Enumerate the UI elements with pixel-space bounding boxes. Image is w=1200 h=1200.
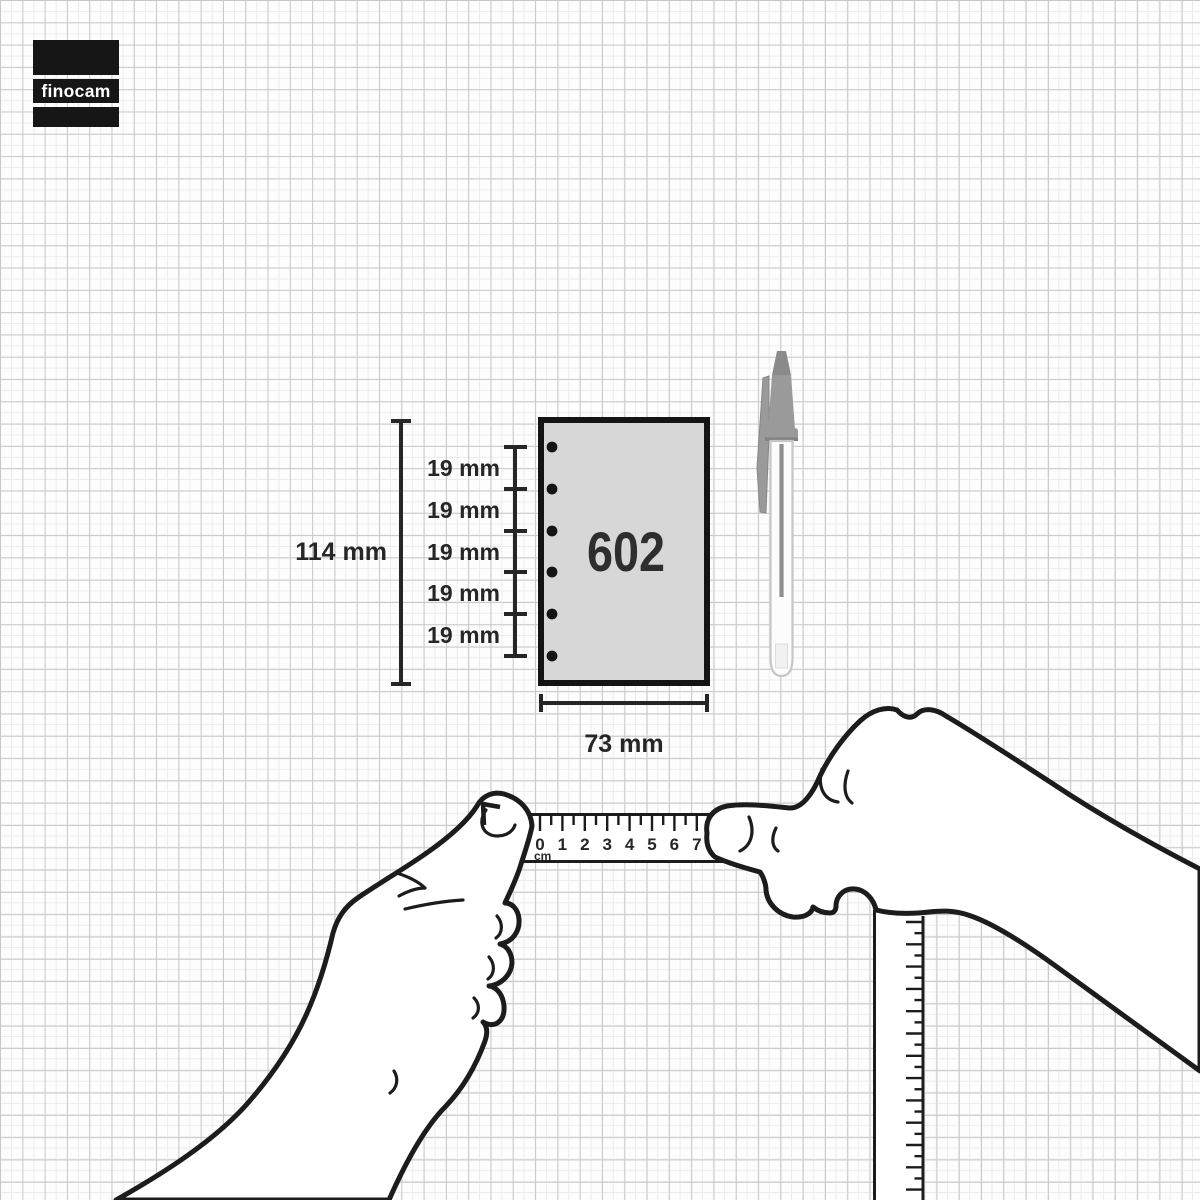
ruler-number: 7 <box>692 835 701 854</box>
sheet-hole <box>547 484 558 495</box>
refill-sheet: 602 <box>541 420 707 683</box>
ruler-number: 2 <box>580 835 589 854</box>
sheet-code-label: 602 <box>587 520 665 583</box>
brand-logo: finocam <box>33 40 119 127</box>
ruler-unit-label: cm <box>534 849 551 863</box>
left-hand-outline <box>116 793 532 1200</box>
right-hand-outline <box>707 708 1200 1071</box>
hole-spacing-label: 19 mm <box>427 455 500 481</box>
sheet-hole <box>547 609 558 620</box>
hole-spacing-dimension: 19 mm 19 mm 19 mm 19 mm 19 mm <box>427 447 527 656</box>
vertical-ruler <box>873 908 925 1200</box>
pen <box>757 351 798 676</box>
hole-spacing-bracket <box>504 447 527 656</box>
pen-plug <box>776 644 788 668</box>
width-dim-label: 73 mm <box>584 730 663 758</box>
logo-text: finocam <box>41 81 110 101</box>
hole-spacing-label: 19 mm <box>427 622 500 648</box>
hole-spacing-label: 19 mm <box>427 497 500 523</box>
ruler-number: 4 <box>625 835 635 854</box>
ruler-number: 5 <box>647 835 656 854</box>
sheet-hole <box>547 567 558 578</box>
logo-band-top <box>33 40 119 75</box>
pen-clip <box>757 376 769 513</box>
height-dim-label: 114 mm <box>295 538 387 566</box>
height-dim-line <box>391 421 411 684</box>
left-hand <box>116 793 532 1200</box>
hole-spacing-label: 19 mm <box>427 539 500 565</box>
pen-cap-body <box>768 375 795 429</box>
sheet-hole <box>547 442 558 453</box>
pen-cap-tip <box>772 351 791 375</box>
measurement-illustration: finocam 114 mm 19 mm 19 mm 19 mm 19 mm 1… <box>0 0 1200 1200</box>
sheet-hole <box>547 651 558 662</box>
logo-band-bottom <box>33 107 119 127</box>
ruler-number: 3 <box>602 835 611 854</box>
right-hand <box>707 708 1200 1071</box>
sheet-hole <box>547 526 558 537</box>
hole-spacing-label: 19 mm <box>427 580 500 606</box>
width-dim-line <box>541 694 707 712</box>
width-dimension: 73 mm <box>541 694 707 758</box>
illustration-svg: finocam 114 mm 19 mm 19 mm 19 mm 19 mm 1… <box>0 0 1200 1200</box>
ruler-number: 6 <box>670 835 679 854</box>
ruler-number: 1 <box>558 835 567 854</box>
height-dimension: 114 mm <box>295 421 411 684</box>
